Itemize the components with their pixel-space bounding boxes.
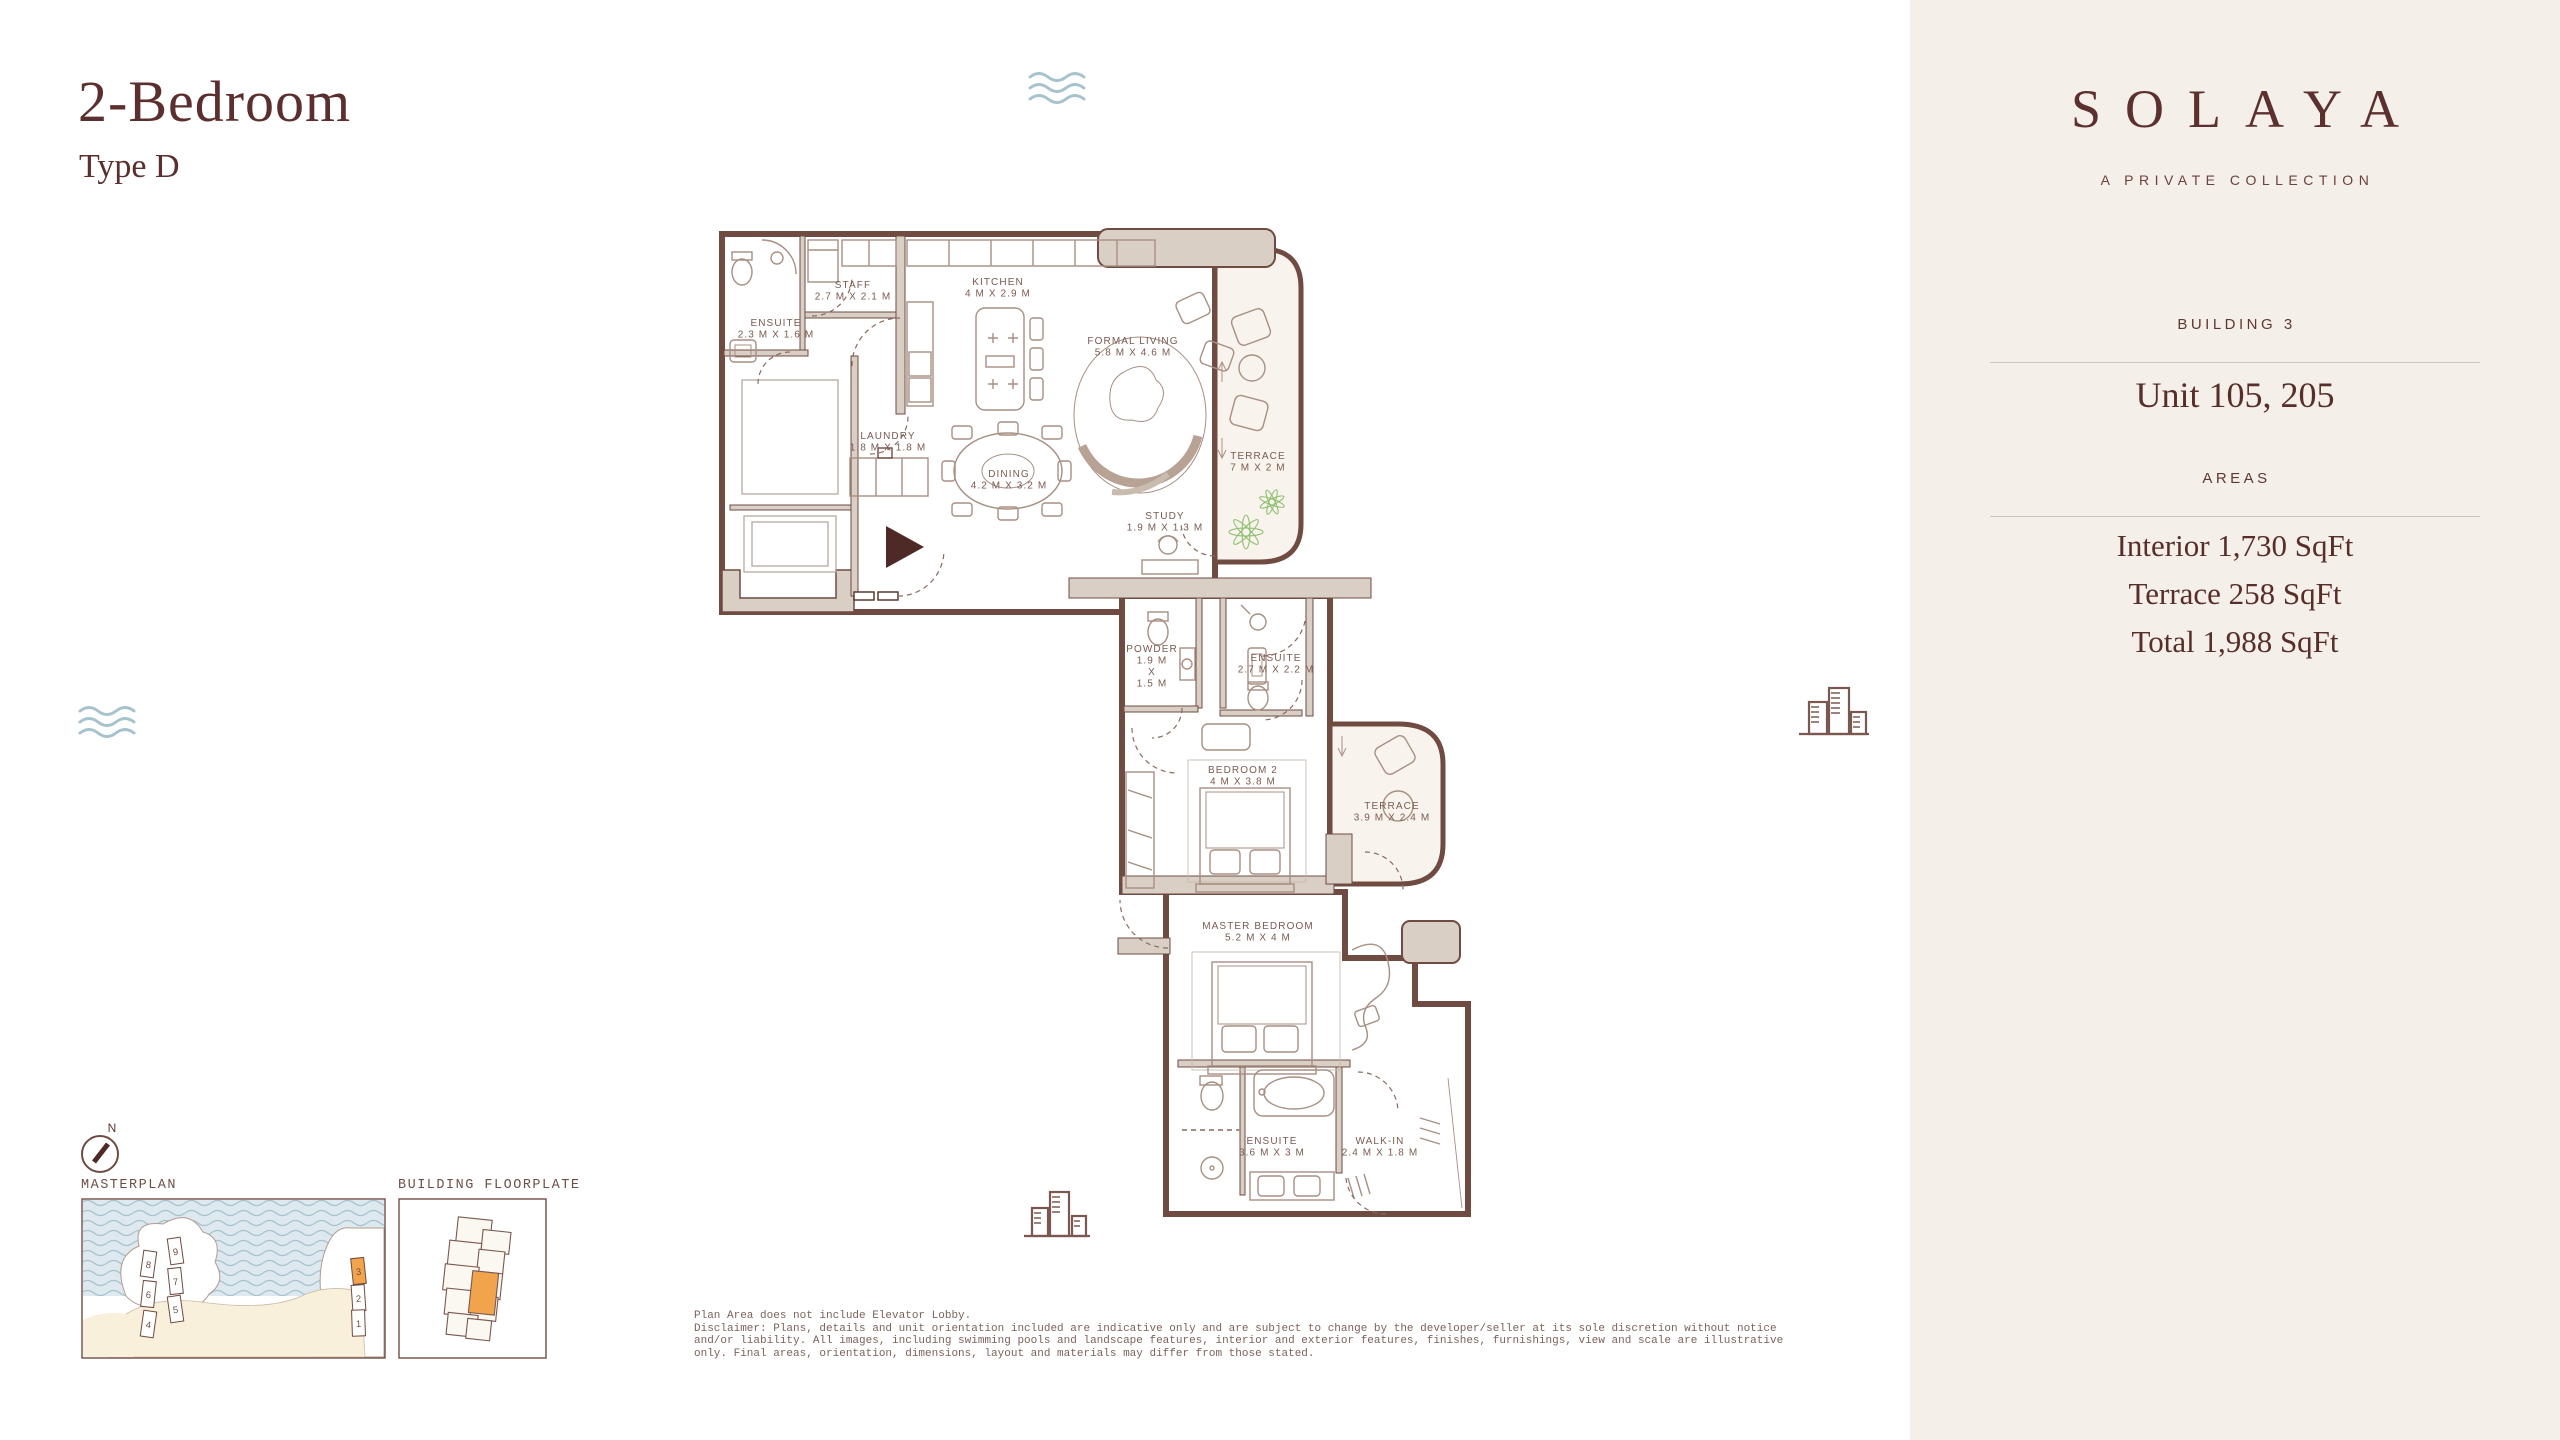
page-subtitle: Type D bbox=[79, 148, 180, 186]
masterplan-building-1: 1 bbox=[352, 1310, 366, 1336]
svg-text:6: 6 bbox=[145, 1290, 151, 1301]
waves-icon-left bbox=[76, 704, 142, 744]
divider-rule bbox=[1990, 362, 2480, 363]
unit-label: Unit 105, 205 bbox=[1910, 374, 2560, 416]
masterplan-beach-left bbox=[83, 1313, 133, 1357]
divider-rule bbox=[1990, 516, 2480, 517]
room-label-terrace-2: TERRACE3.9 M X 2.4 M bbox=[1354, 801, 1431, 824]
building-floorplate-map[interactable] bbox=[398, 1198, 547, 1359]
svg-text:7: 7 bbox=[172, 1277, 178, 1288]
room-label-ensuite-master: ENSUITE3.6 M X 3 M bbox=[1239, 1136, 1305, 1159]
areas-label: AREAS bbox=[1910, 470, 2560, 487]
masterplan-label: MASTERPLAN bbox=[81, 1178, 177, 1193]
area-total: Total 1,988 SqFt bbox=[1910, 618, 2560, 666]
masterplan-building-6: 6 bbox=[141, 1280, 157, 1307]
floorplate-label: BUILDING FLOORPLATE bbox=[398, 1178, 580, 1193]
room-label-laundry: LAUNDRY1.8 M X 1.8 M bbox=[850, 431, 927, 454]
floorplate-highlighted-unit bbox=[468, 1271, 498, 1315]
room-label-kitchen: KITCHEN4 M X 2.9 M bbox=[965, 277, 1031, 300]
room-label-bedroom-2: BEDROOM 24 M X 3.8 M bbox=[1208, 765, 1278, 788]
room-label-terrace-1: TERRACE7 M X 2 M bbox=[1230, 451, 1285, 474]
floorplan: STAFF2.7 M X 2.1 MENSUITE2.3 M X 1.6 MKI… bbox=[700, 225, 1500, 1235]
page-title: 2-Bedroom bbox=[78, 68, 351, 135]
building-label: BUILDING 3 bbox=[1910, 316, 2560, 333]
compass: N bbox=[74, 1118, 144, 1180]
waves-icon-top bbox=[1026, 70, 1092, 110]
area-interior: Interior 1,730 SqFt bbox=[1910, 522, 2560, 570]
room-label-formal-living: FORMAL LIVING5.8 M X 4.6 M bbox=[1087, 336, 1178, 359]
area-values: Interior 1,730 SqFt Terrace 258 SqFt Tot… bbox=[1910, 522, 2560, 666]
sidebar: SOLAYA A PRIVATE COLLECTION BUILDING 3 U… bbox=[1910, 0, 2560, 1440]
masterplan-map[interactable]: 987654321 bbox=[81, 1198, 386, 1359]
svg-text:3: 3 bbox=[355, 1267, 361, 1278]
compass-n-label: N bbox=[108, 1121, 117, 1135]
brand-logo: SOLAYA bbox=[1910, 78, 2560, 140]
masterplan-building-7: 7 bbox=[168, 1267, 184, 1294]
svg-text:1: 1 bbox=[356, 1319, 362, 1330]
main-canvas: 2-Bedroom Type D bbox=[0, 0, 1910, 1440]
masterplan-building-3: 3 bbox=[351, 1257, 367, 1284]
masterplan-building-2: 2 bbox=[351, 1285, 366, 1312]
floorplan-footprint bbox=[722, 229, 1468, 1214]
svg-text:2: 2 bbox=[356, 1294, 362, 1305]
area-terrace: Terrace 258 SqFt bbox=[1910, 570, 2560, 618]
buildings-icon-right bbox=[1793, 684, 1875, 742]
disclaimer-text: Plan Area does not include Elevator Lobb… bbox=[694, 1310, 1884, 1360]
brand-tagline: A PRIVATE COLLECTION bbox=[1910, 172, 2560, 188]
